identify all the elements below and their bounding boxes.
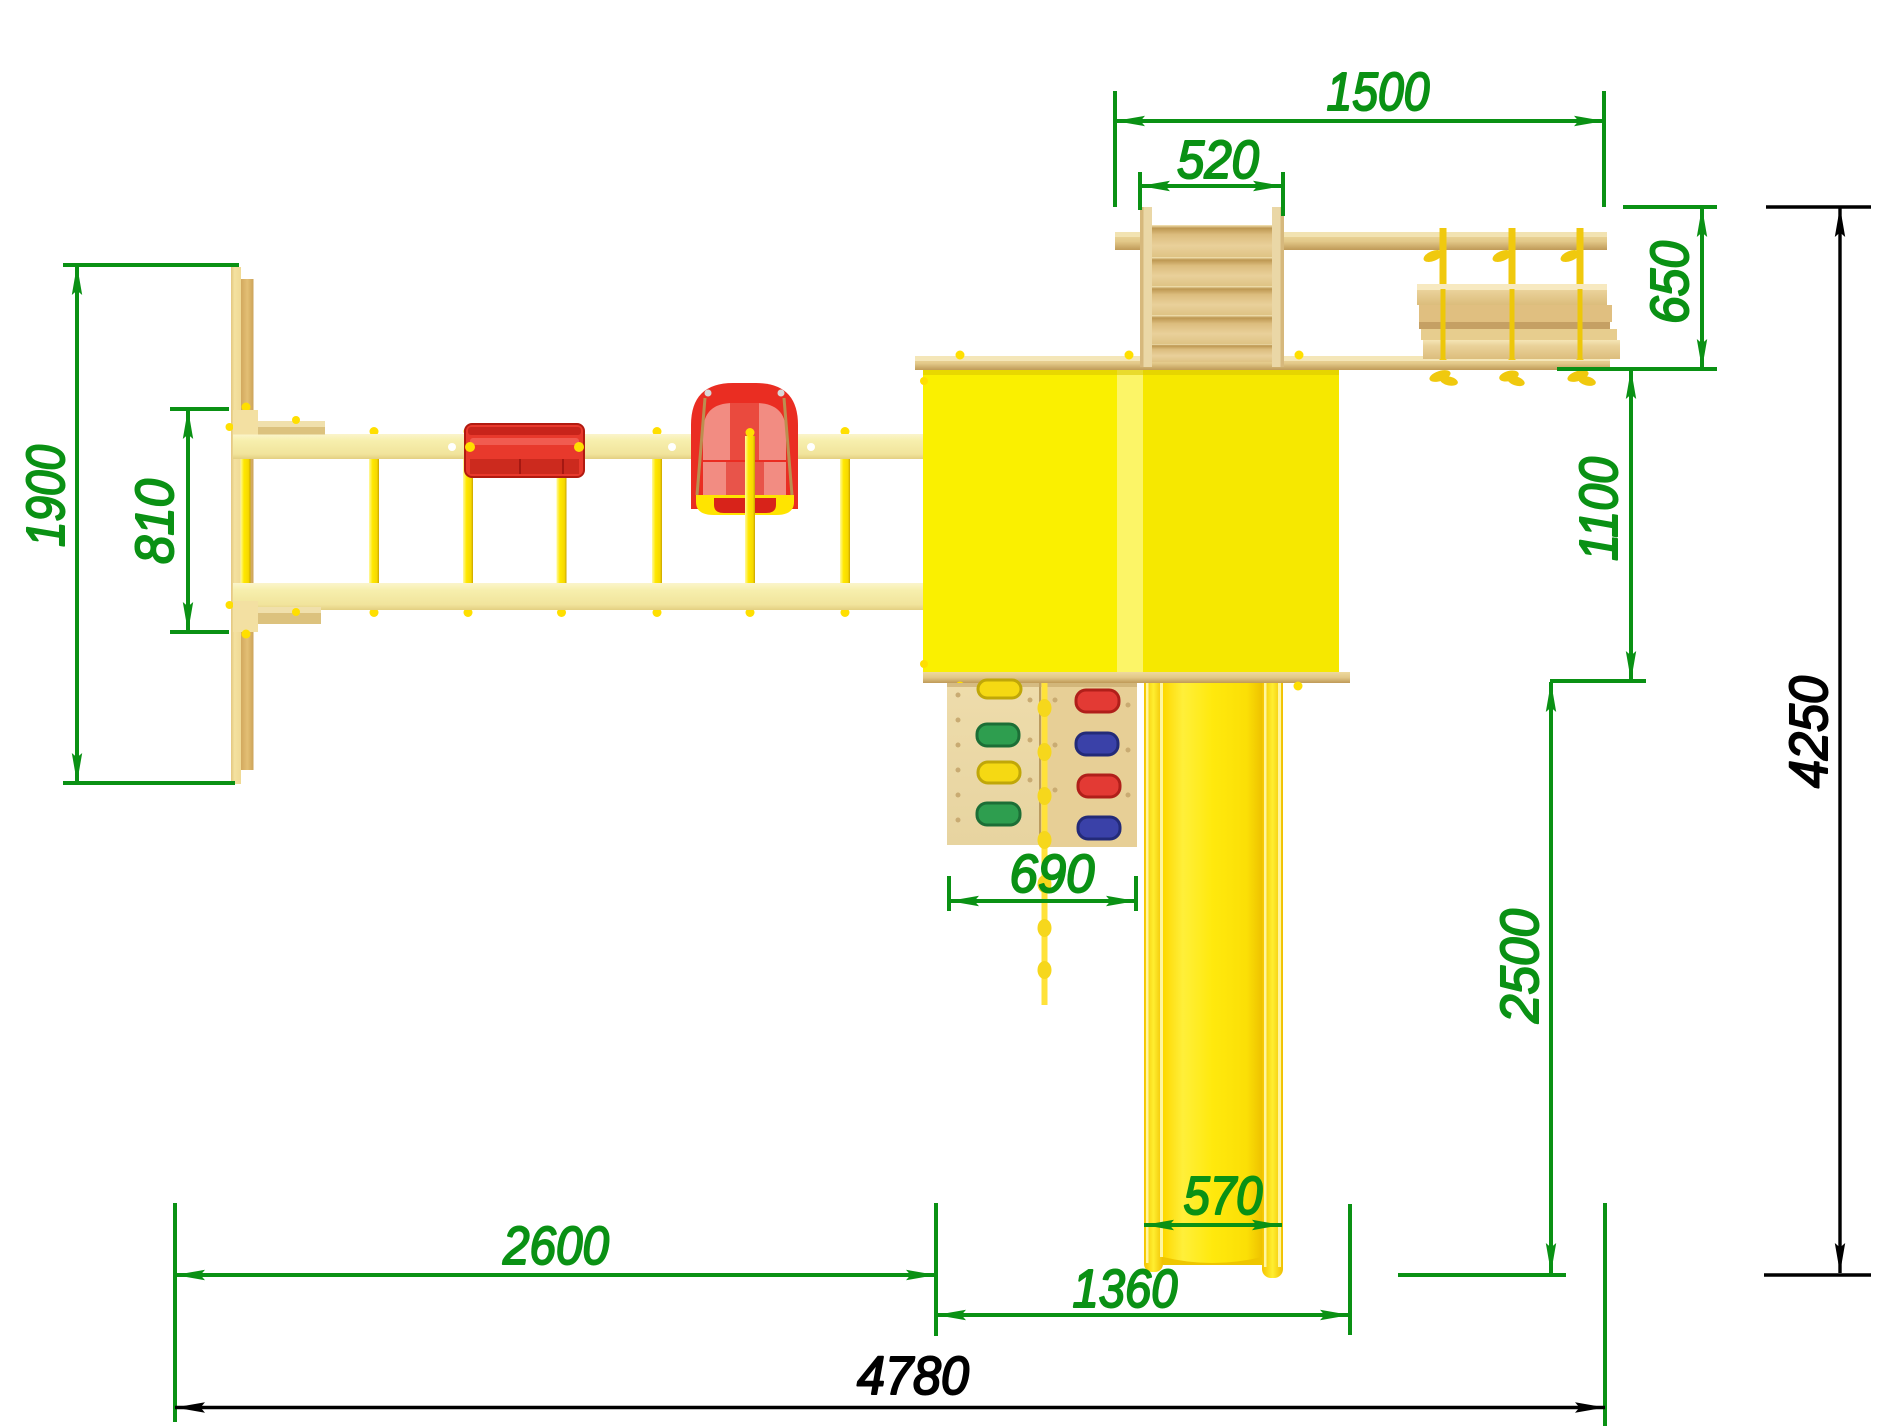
svg-text:650: 650 bbox=[1640, 241, 1700, 324]
svg-text:4780: 4780 bbox=[857, 1346, 969, 1406]
svg-text:1360: 1360 bbox=[1073, 1259, 1178, 1319]
svg-text:2600: 2600 bbox=[502, 1216, 609, 1276]
svg-text:1100: 1100 bbox=[1569, 457, 1629, 561]
svg-text:1500: 1500 bbox=[1327, 62, 1430, 122]
svg-text:2500: 2500 bbox=[1490, 909, 1550, 1024]
svg-text:690: 690 bbox=[1010, 844, 1095, 904]
svg-text:570: 570 bbox=[1184, 1166, 1263, 1226]
svg-text:1900: 1900 bbox=[16, 445, 76, 547]
svg-text:4250: 4250 bbox=[1779, 676, 1839, 788]
svg-text:810: 810 bbox=[125, 479, 185, 564]
svg-text:520: 520 bbox=[1177, 130, 1259, 190]
